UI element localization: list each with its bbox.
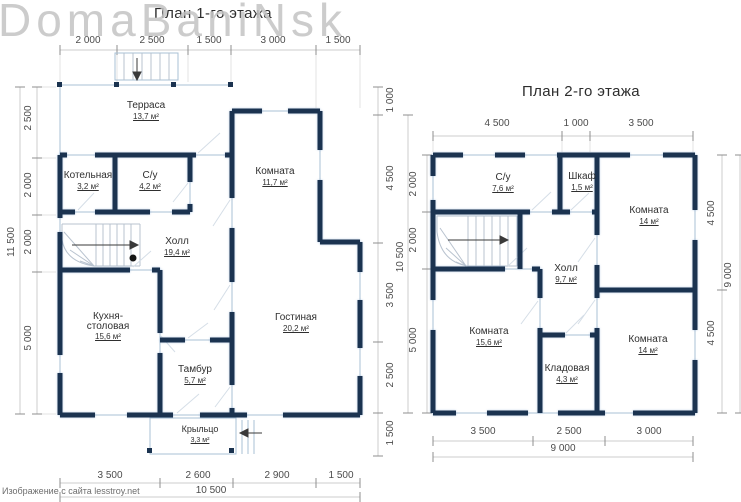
dim-label: 3 000 [619, 426, 679, 437]
dim-label: 1 500 [179, 35, 239, 46]
dim-label: 2 600 [168, 470, 228, 481]
room-label-room-1: Комната 11,7 м² [235, 166, 315, 188]
floor1-title: План 1-го этажа [128, 5, 298, 22]
room-label-closet: Шкаф 1,5 м² [542, 171, 622, 193]
dim-label: 3 500 [80, 470, 140, 481]
dim-label: 2 500 [122, 35, 182, 46]
room-label-hall-2: Холл 9,7 м² [526, 263, 606, 285]
floorplan-page: DomaBaniNsk План 1-го этажа План 2-го эт… [0, 0, 741, 502]
room-label-room-right: Комната 14 м² [608, 334, 688, 356]
dim-label: 1 000 [546, 118, 606, 129]
dim-label: 1 500 [385, 408, 397, 458]
room-label-vestibule: Тамбур 5,7 м² [155, 364, 235, 386]
room-label-kitchen: Кухня-столовая 15,6 м² [79, 312, 137, 342]
dim-label: 2 900 [247, 470, 307, 481]
dim-total-label: 9 000 [723, 250, 735, 300]
dim-label: 2 500 [539, 426, 599, 437]
dim-label: 2 000 [58, 35, 118, 46]
room-label-room-left: Комната 15,6 м² [449, 326, 529, 348]
dim-label: 1 500 [311, 470, 371, 481]
dim-total-label: 9 000 [533, 443, 593, 454]
dim-total-label: 10 500 [395, 232, 407, 282]
dim-label: 4 500 [467, 118, 527, 129]
floor2-title: План 2-го этажа [496, 83, 666, 100]
dim-label: 3 500 [611, 118, 671, 129]
dim-label: 2 000 [408, 215, 420, 265]
dim-label: 4 500 [385, 153, 397, 203]
dim-label: 2 000 [23, 160, 35, 210]
dim-label: 1 500 [308, 35, 368, 46]
room-label-porch: Крыльцо 3,3 м² [160, 424, 240, 446]
dim-label: 2 500 [385, 350, 397, 400]
room-label-storage: Кладовая 4,3 м² [527, 363, 607, 385]
dim-total-label: 11 500 [6, 217, 18, 267]
room-label-bath-1: С/у 4,2 м² [110, 170, 190, 192]
room-label-bath-2: С/у 7,6 м² [463, 172, 543, 194]
dim-label: 4 500 [706, 188, 718, 238]
dim-label: 3 500 [453, 426, 513, 437]
dim-label: 2 000 [23, 217, 35, 267]
dim-label: 5 000 [23, 313, 35, 363]
dim-label: 2 000 [408, 159, 420, 209]
dim-label: 2 500 [23, 93, 35, 143]
source-credit: Изображение с сайта lesstroy.net [2, 486, 140, 496]
dim-label: 3 000 [243, 35, 303, 46]
section-dot-marker [130, 255, 137, 262]
dim-label: 1 000 [385, 75, 397, 125]
dim-label: 5 000 [408, 315, 420, 365]
room-label-hall-1: Холл 19,4 м² [137, 236, 217, 258]
room-label-living: Гостиная 20,2 м² [256, 312, 336, 334]
room-label-terrace: Терраса 13,7 м² [106, 100, 186, 122]
dim-total-label: 10 500 [181, 485, 241, 496]
room-label-room-top: Комната 14 м² [609, 205, 689, 227]
dim-label: 4 500 [706, 308, 718, 358]
